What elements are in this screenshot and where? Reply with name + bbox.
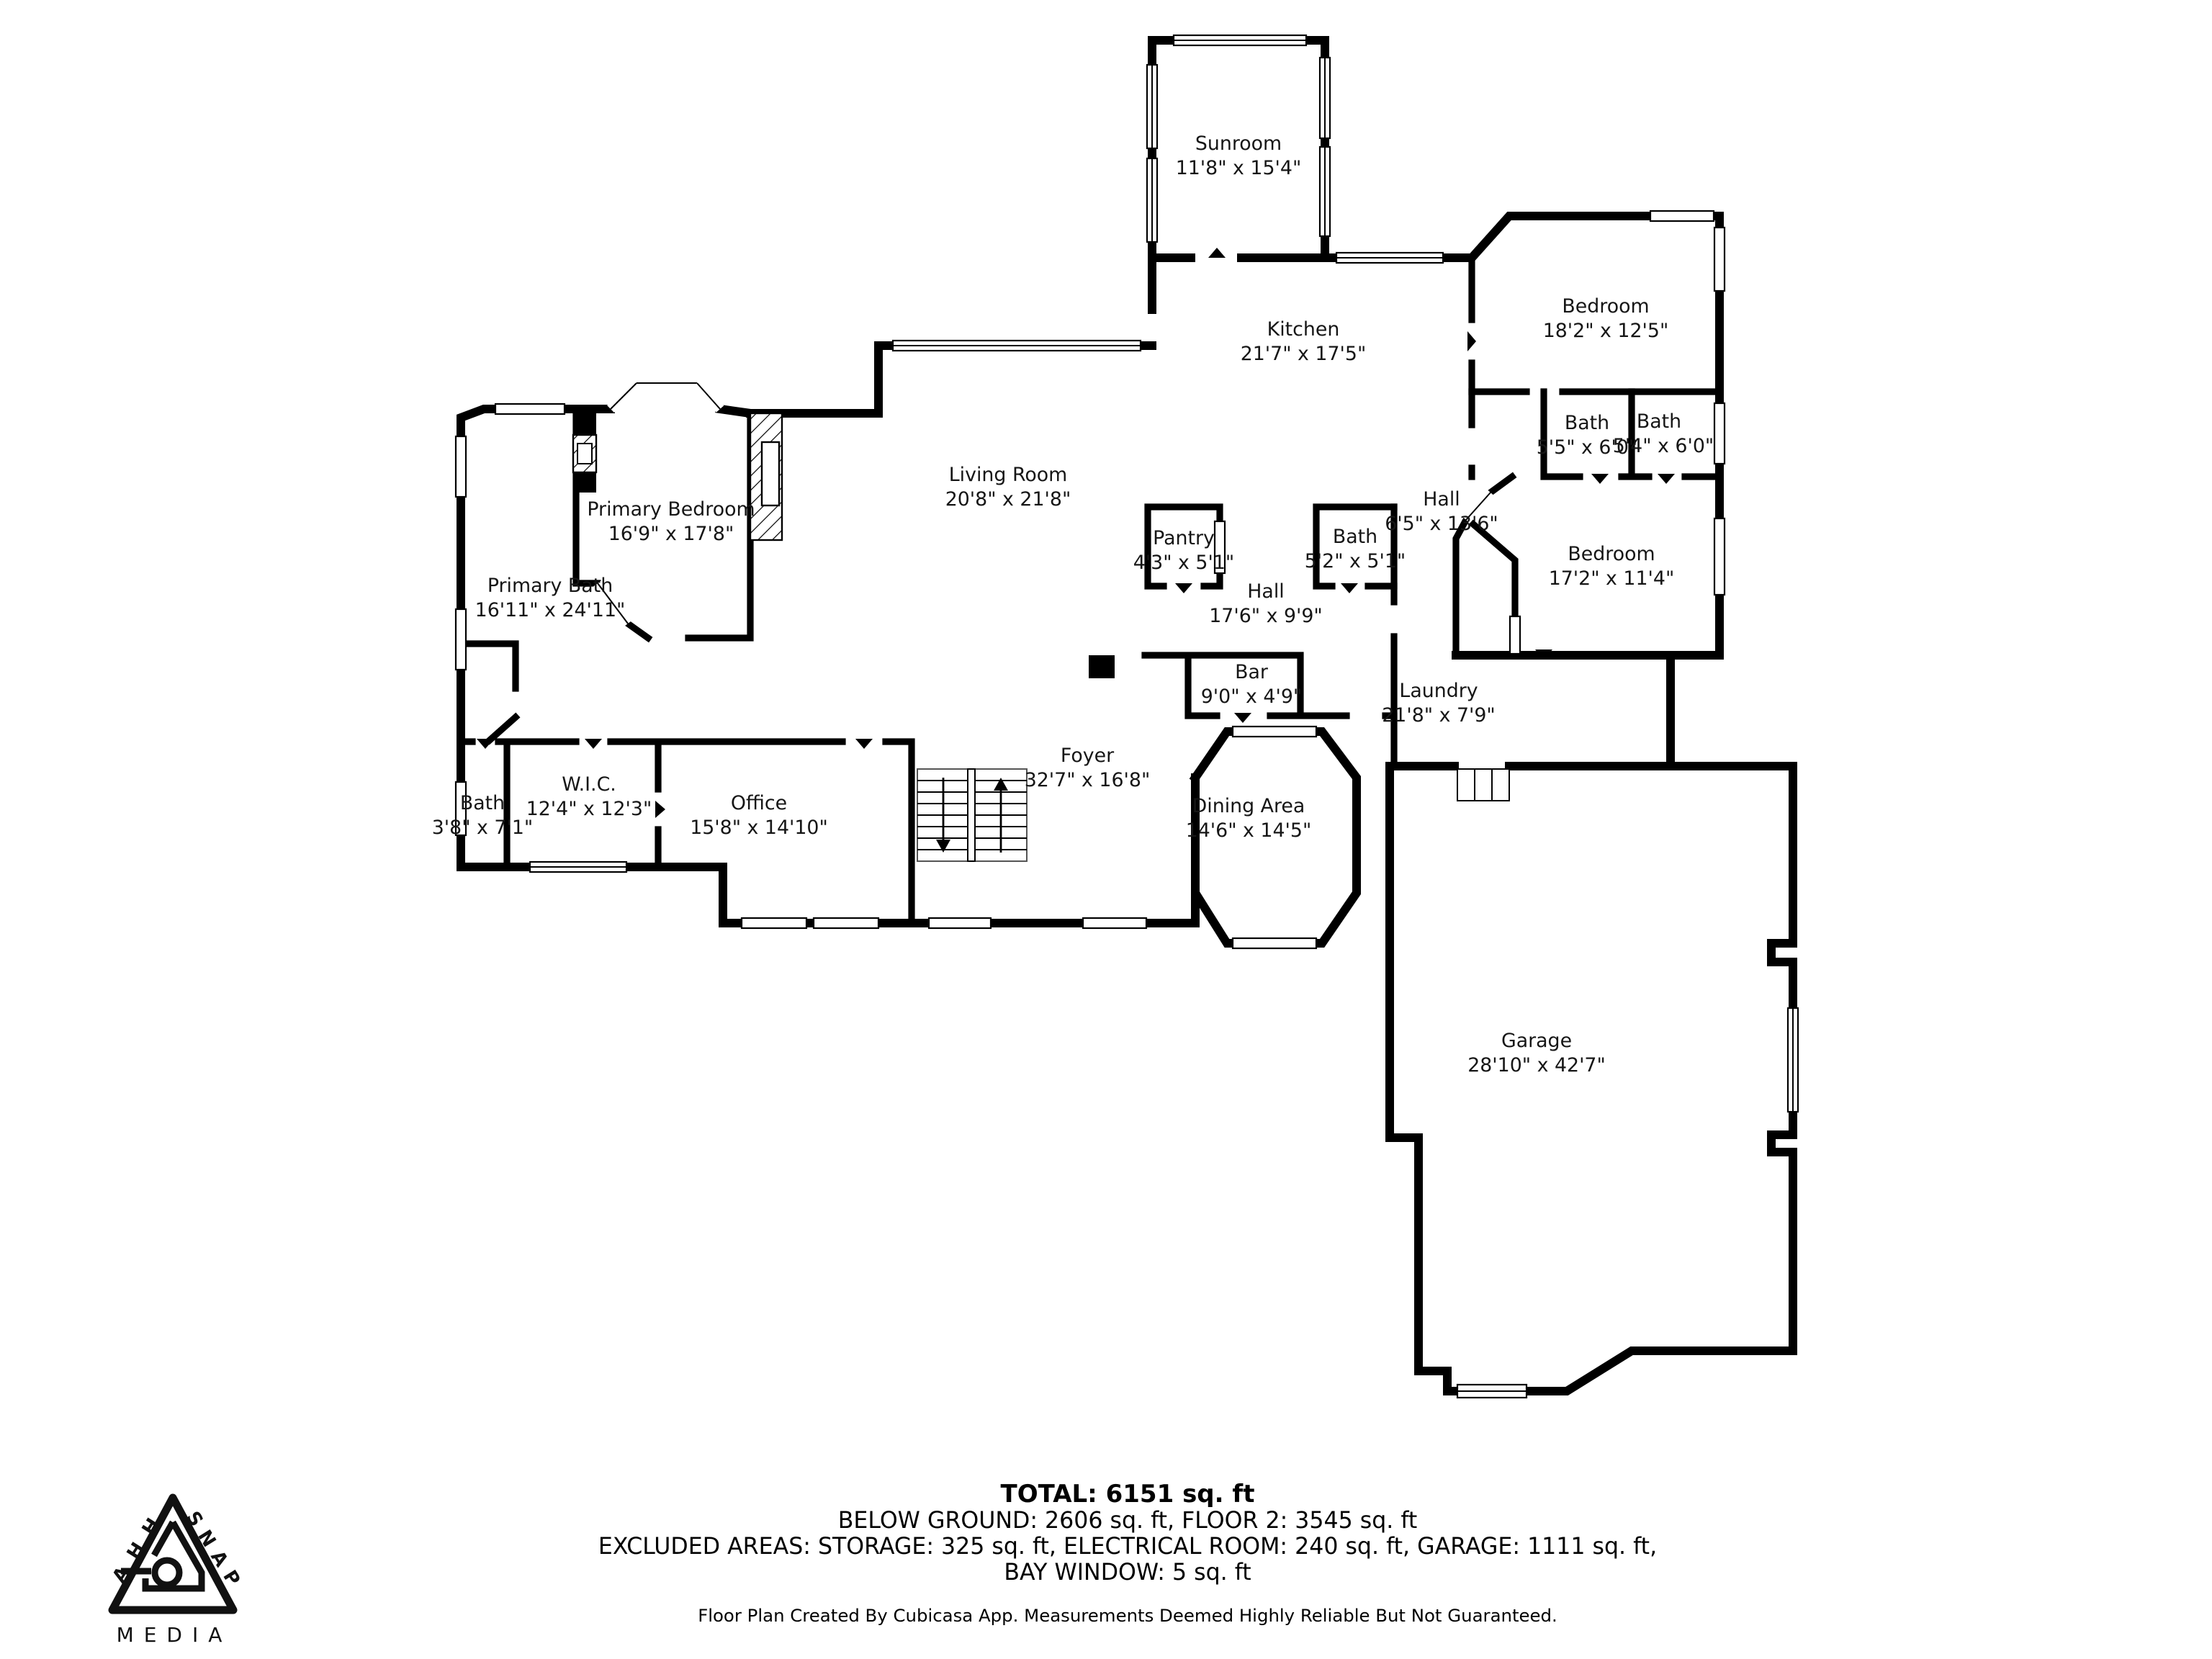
summary-block: TOTAL: 6151 sq. ft BELOW GROUND: 2606 sq… [598, 1480, 1657, 1626]
room-label-office: Office [731, 792, 787, 814]
room-label-bath-1: Bath [1565, 412, 1609, 434]
room-label-bar: Bar [1235, 661, 1269, 683]
room-label-bedroom-2: Bedroom [1568, 543, 1655, 565]
room-label-garage: Garage [1501, 1030, 1572, 1052]
chimney-block-top [573, 412, 596, 435]
room-dims-hall-upper: 6'5" x 13'6" [1385, 513, 1498, 535]
chimney-block-bottom [573, 472, 596, 493]
room-labels: Sunroom 11'8" x 15'4" Kitchen 21'7" x 17… [432, 132, 1714, 1076]
summary-total: TOTAL: 6151 sq. ft [1001, 1480, 1255, 1509]
room-dims-bedroom-1: 18'2" x 12'5" [1543, 320, 1669, 342]
chimney-box [577, 444, 592, 464]
summary-line3: EXCLUDED AREAS: STORAGE: 325 sq. ft, ELE… [598, 1534, 1657, 1560]
room-dims-primary-bath: 16'11" x 24'11" [475, 599, 626, 621]
room-label-pantry: Pantry [1153, 527, 1215, 549]
room-dims-hall-main: 17'6" x 9'9" [1209, 605, 1323, 627]
room-label-living-room: Living Room [949, 464, 1068, 486]
room-label-hall-main: Hall [1247, 580, 1284, 603]
room-dims-bar: 9'0" x 4'9" [1201, 685, 1302, 708]
room-dims-pantry: 4'3" x 5'1" [1133, 552, 1234, 574]
exterior-walls [461, 40, 1793, 1391]
room-dims-bath-2: 5'4" x 6'0" [1613, 435, 1714, 457]
room-label-dining-area: Dining Area [1192, 795, 1305, 817]
disclaimer-text: Floor Plan Created By Cubicasa App. Meas… [698, 1605, 1557, 1626]
room-label-bath-3: Bath [1333, 526, 1377, 548]
primary-bedroom-bay-window [611, 383, 720, 409]
room-dims-primary-bedroom: 16'9" x 17'8" [608, 523, 734, 545]
room-dims-laundry: 21'8" x 7'9" [1382, 704, 1496, 727]
summary-line4: BAY WINDOW: 5 sq. ft [1004, 1560, 1251, 1586]
room-dims-bedroom-2: 17'2" x 11'4" [1549, 567, 1675, 590]
room-label-foyer: Foyer [1061, 745, 1115, 767]
room-dims-bath-4: 3'8" x 7'1" [432, 817, 533, 839]
fireplace-box [762, 442, 779, 505]
room-label-primary-bath: Primary Bath [487, 575, 613, 597]
room-dims-garage: 28'10" x 42'7" [1467, 1054, 1606, 1076]
room-label-laundry: Laundry [1399, 680, 1478, 702]
windows [456, 35, 1798, 1398]
room-label-sunroom: Sunroom [1195, 132, 1282, 155]
room-label-bath-4: Bath [460, 792, 505, 814]
staircase [917, 769, 1027, 861]
room-label-primary-bedroom: Primary Bedroom [587, 498, 755, 521]
room-label-bath-2: Bath [1637, 410, 1681, 433]
interior-walls [461, 258, 1719, 923]
garage-steps [1457, 769, 1509, 801]
room-dims-bath-3: 5'2" x 5'1" [1305, 550, 1406, 572]
floor-plan-page: Sunroom 11'8" x 15'4" Kitchen 21'7" x 17… [0, 0, 2212, 1659]
floor-plan-canvas: Sunroom 11'8" x 15'4" Kitchen 21'7" x 17… [0, 0, 2212, 1659]
room-dims-sunroom: 11'8" x 15'4" [1176, 157, 1302, 179]
summary-line2: BELOW GROUND: 2606 sq. ft, FLOOR 2: 3545… [838, 1508, 1418, 1534]
room-dims-foyer: 32'7" x 16'8" [1025, 769, 1151, 791]
room-dims-kitchen: 21'7" x 17'5" [1241, 343, 1367, 365]
hall-post [1089, 655, 1115, 678]
room-label-kitchen: Kitchen [1267, 318, 1340, 341]
room-dims-living-room: 20'8" x 21'8" [945, 488, 1071, 511]
room-label-bedroom-1: Bedroom [1562, 295, 1649, 318]
logo-lens-circle [155, 1560, 179, 1585]
room-label-hall-upper: Hall [1423, 488, 1460, 511]
room-dims-dining-area: 14'6" x 14'5" [1186, 819, 1312, 842]
logo-word-media: MEDIA [117, 1623, 233, 1647]
fireplace-symbols [573, 412, 782, 540]
room-label-wic: W.I.C. [562, 773, 616, 796]
room-dims-wic: 12'4" x 12'3" [526, 798, 652, 820]
ahh-snap-media-logo: AHH SNAP MEDIA [108, 1498, 248, 1647]
room-dims-office: 15'8" x 14'10" [690, 817, 828, 839]
